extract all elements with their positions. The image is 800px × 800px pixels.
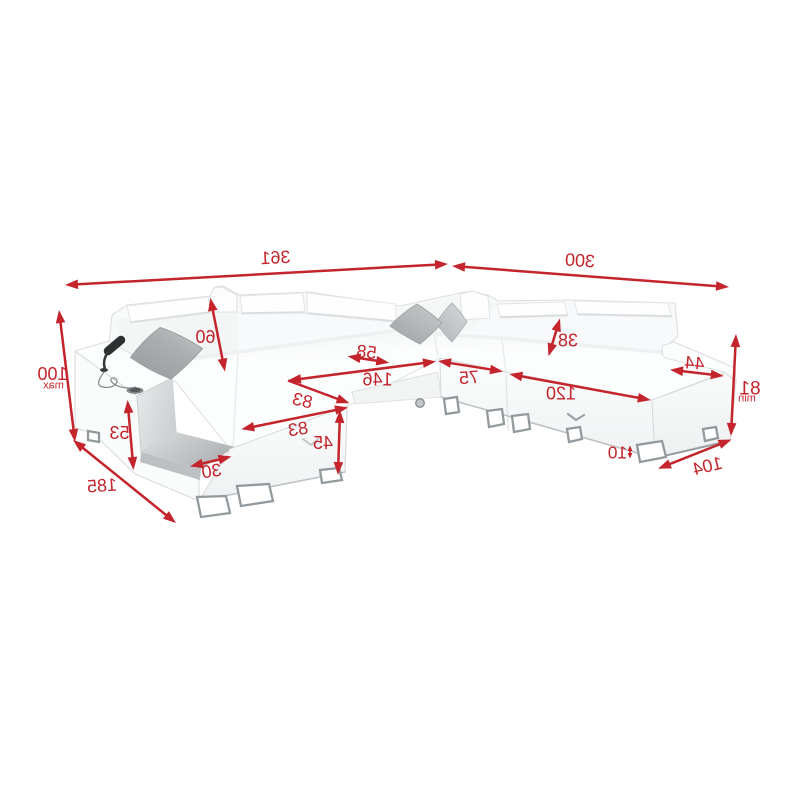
svg-text:60: 60 [195, 327, 215, 347]
svg-text:10: 10 [608, 443, 628, 463]
svg-text:58: 58 [355, 341, 377, 363]
svg-text:44: 44 [684, 352, 706, 374]
svg-text:45: 45 [313, 433, 333, 453]
svg-text:75: 75 [458, 367, 479, 388]
svg-text:83: 83 [287, 418, 310, 441]
svg-text:120: 120 [546, 384, 576, 404]
svg-text:max: max [43, 380, 64, 392]
svg-text:146: 146 [362, 370, 392, 390]
svg-text:53: 53 [109, 423, 129, 443]
svg-text:300: 300 [564, 249, 595, 271]
svg-text:38: 38 [558, 330, 578, 350]
svg-text:30: 30 [200, 460, 223, 483]
svg-text:185: 185 [86, 474, 117, 496]
svg-text:361: 361 [260, 247, 291, 269]
svg-text:min: min [738, 393, 756, 405]
